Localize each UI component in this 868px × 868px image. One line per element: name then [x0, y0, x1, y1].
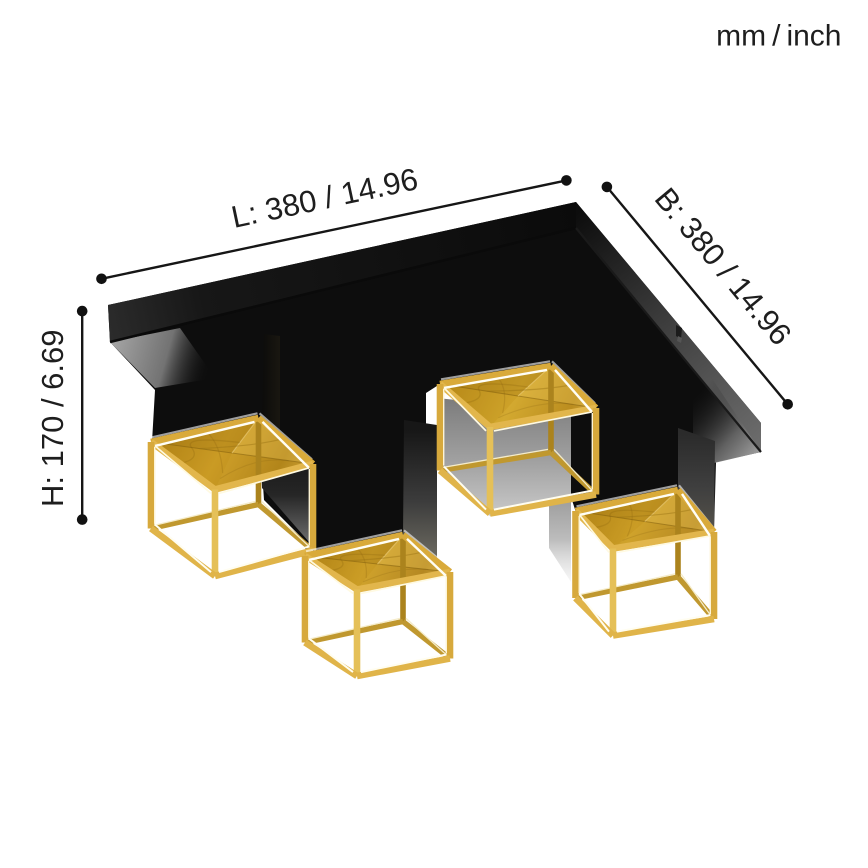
svg-text:mm / inch: mm / inch [716, 20, 841, 53]
svg-text:H: 170 / 6.69: H: 170 / 6.69 [35, 329, 70, 507]
